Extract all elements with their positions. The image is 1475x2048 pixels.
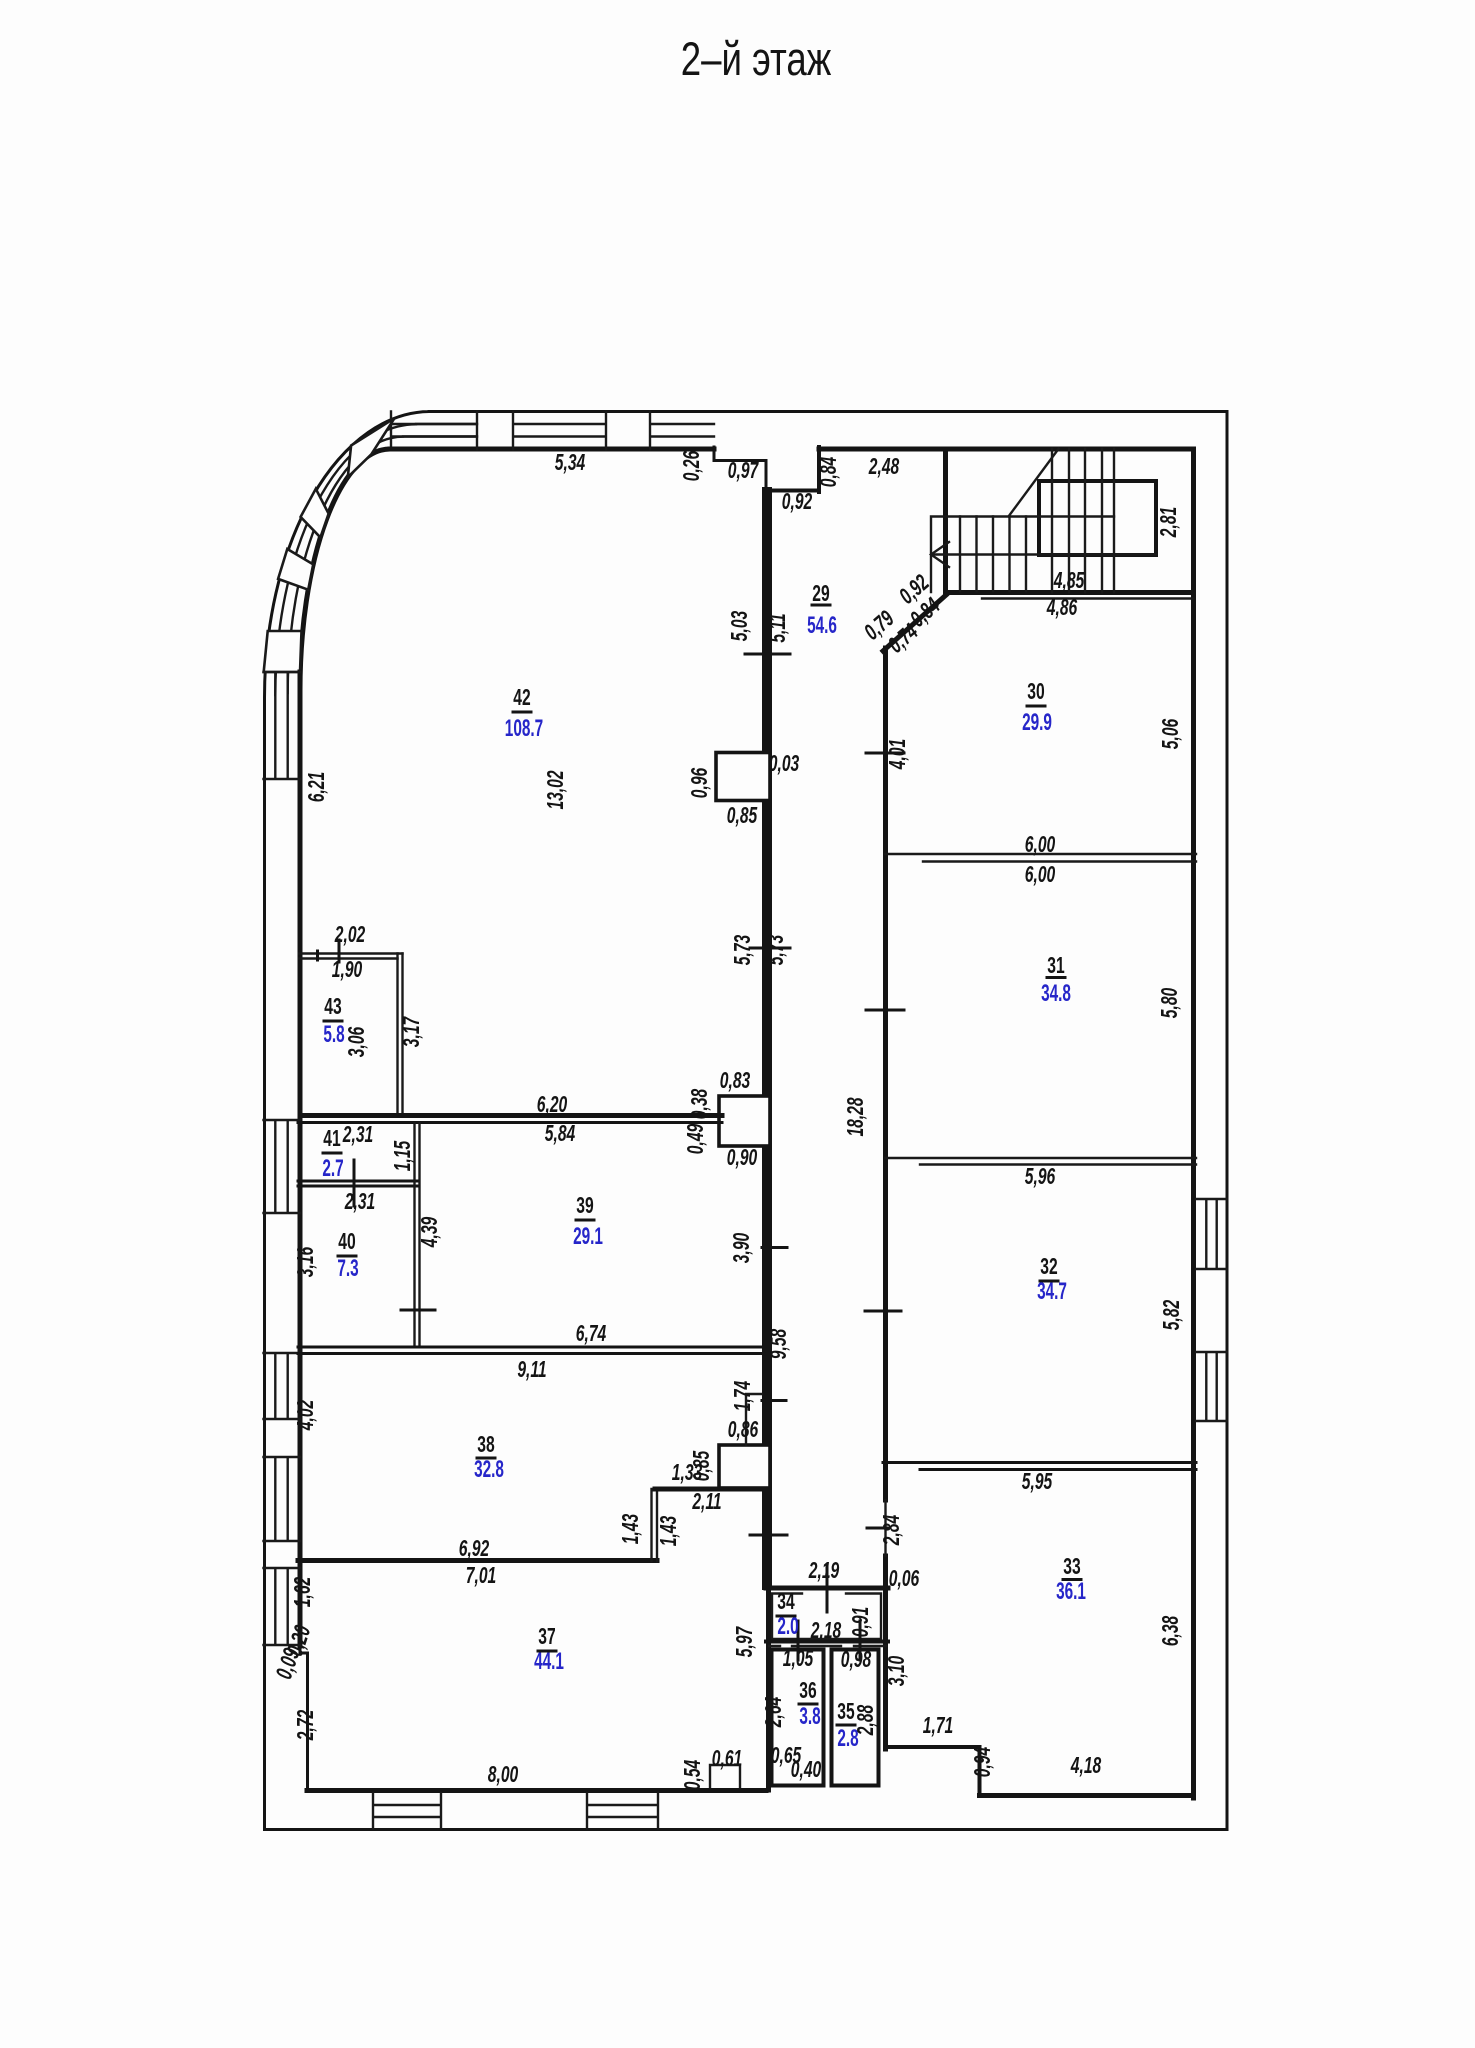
svg-text:0,98: 0,98: [841, 1647, 871, 1673]
svg-text:2–й этаж: 2–й этаж: [681, 33, 832, 85]
svg-text:3.8: 3.8: [799, 1704, 820, 1730]
svg-text:2,48: 2,48: [868, 454, 899, 480]
svg-text:0,06: 0,06: [889, 1566, 920, 1592]
svg-text:8,00: 8,00: [488, 1762, 518, 1788]
svg-text:32.8: 32.8: [474, 1457, 504, 1483]
svg-text:0,83: 0,83: [720, 1068, 750, 1094]
svg-text:34.7: 34.7: [1037, 1279, 1067, 1305]
svg-text:4,01: 4,01: [885, 739, 911, 770]
svg-text:6,21: 6,21: [304, 772, 330, 802]
svg-text:9,11: 9,11: [517, 1357, 546, 1383]
svg-text:5,97: 5,97: [732, 1626, 758, 1657]
svg-text:44.1: 44.1: [534, 1649, 564, 1675]
svg-text:0,49: 0,49: [683, 1124, 709, 1154]
svg-text:3,90: 3,90: [729, 1233, 755, 1263]
svg-text:0,03: 0,03: [769, 751, 799, 777]
svg-text:33: 33: [1063, 1554, 1080, 1580]
svg-text:2,72: 2,72: [293, 1710, 319, 1741]
svg-text:6,00: 6,00: [1025, 832, 1055, 858]
svg-text:1,05: 1,05: [783, 1646, 814, 1672]
svg-text:18,28: 18,28: [843, 1097, 869, 1136]
svg-text:29.1: 29.1: [573, 1224, 603, 1250]
svg-text:5,03: 5,03: [727, 611, 753, 641]
svg-text:3,10: 3,10: [884, 1656, 910, 1686]
svg-text:5,95: 5,95: [1022, 1469, 1053, 1495]
svg-text:1,90: 1,90: [332, 957, 362, 983]
svg-text:7,01: 7,01: [466, 1563, 496, 1589]
svg-text:36.1: 36.1: [1056, 1579, 1086, 1605]
svg-text:38: 38: [477, 1432, 494, 1458]
svg-text:29.9: 29.9: [1022, 710, 1052, 736]
svg-text:0,90: 0,90: [727, 1145, 757, 1171]
svg-text:6,74: 6,74: [576, 1321, 606, 1347]
svg-text:31: 31: [1047, 953, 1064, 979]
svg-text:30: 30: [1027, 679, 1044, 705]
svg-text:2,81: 2,81: [1156, 507, 1182, 538]
svg-text:2,19: 2,19: [808, 1558, 839, 1584]
svg-text:0,96: 0,96: [687, 767, 713, 798]
svg-text:5,96: 5,96: [1025, 1164, 1056, 1190]
svg-text:5,84: 5,84: [545, 1121, 575, 1147]
svg-text:13,02: 13,02: [543, 770, 569, 809]
svg-text:39: 39: [576, 1193, 593, 1219]
svg-text:41: 41: [323, 1126, 340, 1152]
svg-text:2,31: 2,31: [342, 1122, 373, 1148]
svg-text:34.8: 34.8: [1041, 981, 1071, 1007]
svg-text:6,92: 6,92: [459, 1536, 489, 1562]
svg-text:1,43: 1,43: [618, 1514, 644, 1544]
svg-text:36: 36: [799, 1678, 816, 1704]
svg-text:0,85: 0,85: [689, 1450, 715, 1481]
svg-text:2,88: 2,88: [853, 1705, 879, 1736]
svg-text:3,16: 3,16: [293, 1246, 319, 1277]
svg-text:0,91: 0,91: [848, 1607, 874, 1637]
svg-text:34: 34: [777, 1589, 794, 1615]
svg-text:0,94: 0,94: [970, 1747, 996, 1777]
svg-text:0,26: 0,26: [679, 450, 705, 481]
svg-text:0,38: 0,38: [687, 1089, 713, 1119]
svg-text:43: 43: [324, 994, 341, 1020]
svg-text:40: 40: [338, 1229, 355, 1255]
svg-text:4,39: 4,39: [417, 1217, 443, 1248]
svg-text:0,92: 0,92: [782, 489, 812, 515]
svg-text:1,62: 1,62: [290, 1577, 316, 1607]
svg-text:1,74: 1,74: [730, 1381, 756, 1411]
svg-text:6,00: 6,00: [1025, 862, 1055, 888]
svg-text:42: 42: [513, 685, 530, 711]
svg-text:7.3: 7.3: [337, 1256, 358, 1282]
svg-text:2,11: 2,11: [692, 1489, 722, 1515]
svg-text:29: 29: [812, 581, 829, 607]
svg-text:37: 37: [538, 1624, 555, 1650]
svg-text:6,20: 6,20: [537, 1092, 567, 1118]
svg-text:108.7: 108.7: [505, 716, 543, 742]
svg-text:0,54: 0,54: [680, 1760, 706, 1790]
svg-text:1,43: 1,43: [656, 1516, 682, 1546]
svg-text:4,85: 4,85: [1053, 568, 1085, 594]
svg-text:9,58: 9,58: [766, 1329, 792, 1359]
svg-text:4,02: 4,02: [293, 1400, 319, 1431]
svg-text:5,80: 5,80: [1157, 988, 1183, 1018]
svg-text:5,11: 5,11: [765, 613, 791, 642]
svg-text:2,64: 2,64: [761, 1697, 787, 1728]
svg-text:0,85: 0,85: [727, 803, 758, 829]
svg-text:2,02: 2,02: [334, 922, 365, 948]
svg-text:2,18: 2,18: [810, 1618, 841, 1644]
svg-text:5,06: 5,06: [1158, 718, 1184, 749]
svg-text:2,84: 2,84: [879, 1515, 905, 1546]
svg-text:3,06: 3,06: [344, 1026, 370, 1057]
svg-text:32: 32: [1040, 1254, 1057, 1280]
svg-text:0,40: 0,40: [791, 1757, 821, 1783]
svg-text:5.8: 5.8: [323, 1022, 344, 1048]
svg-text:4,86: 4,86: [1046, 595, 1078, 621]
svg-text:0,84: 0,84: [816, 457, 842, 487]
svg-text:3,17: 3,17: [399, 1016, 425, 1047]
svg-text:4,18: 4,18: [1070, 1753, 1101, 1779]
svg-text:1,15: 1,15: [390, 1140, 416, 1171]
svg-text:2.0: 2.0: [777, 1614, 798, 1640]
svg-text:5,73: 5,73: [763, 935, 789, 965]
svg-text:2,31: 2,31: [344, 1189, 375, 1215]
svg-text:0,86: 0,86: [728, 1417, 759, 1443]
svg-text:6,38: 6,38: [1158, 1616, 1184, 1646]
svg-text:54.6: 54.6: [807, 613, 837, 639]
svg-text:5,82: 5,82: [1159, 1300, 1185, 1330]
svg-text:5,73: 5,73: [730, 935, 756, 965]
svg-text:0,97: 0,97: [728, 458, 759, 484]
svg-text:5,34: 5,34: [555, 450, 585, 476]
svg-text:2.7: 2.7: [322, 1156, 343, 1182]
svg-text:0,61: 0,61: [712, 1746, 742, 1772]
svg-text:1,71: 1,71: [923, 1713, 953, 1739]
